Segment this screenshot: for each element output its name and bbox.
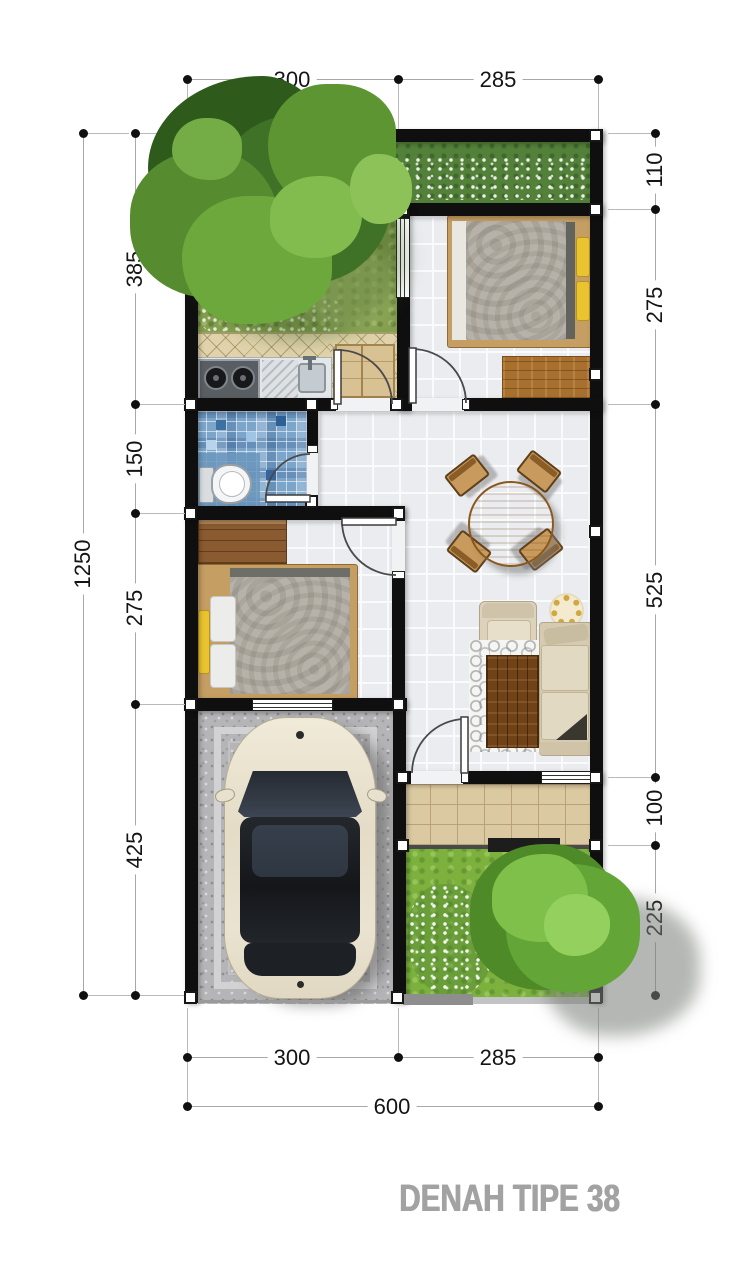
door-arc-service [338, 350, 392, 404]
dim-label-left-425: 425 [121, 826, 149, 875]
door-leaf-bedroom2 [342, 518, 396, 525]
dim-label-right-275: 275 [641, 281, 669, 330]
door-arc-bedroom1 [412, 349, 466, 403]
dim-label-bottom-300: 300 [268, 1044, 317, 1072]
dim-label-top-285: 285 [474, 66, 523, 94]
dim-connector [608, 404, 655, 405]
door-leaf-bathroom [266, 495, 310, 502]
door-leaf-main-entry [461, 717, 468, 773]
dim-dot [131, 991, 140, 1000]
dim-connector [608, 133, 655, 134]
dim-dot [131, 400, 140, 409]
dim-dot [79, 991, 88, 1000]
dim-connector [135, 704, 185, 705]
dim-connector [187, 1008, 188, 1057]
door-arc-main-entry [412, 719, 464, 773]
dim-label-left-275: 275 [121, 584, 149, 633]
dim-dot [131, 700, 140, 709]
dim-dot [394, 1053, 403, 1062]
dim-connector [135, 404, 185, 405]
dim-connector [608, 209, 655, 210]
dim-dot [79, 129, 88, 138]
dim-connector [608, 777, 655, 778]
dim-line-bottom [187, 1057, 598, 1058]
plan-title: DENAH TIPE 38 [386, 1178, 620, 1221]
dim-label-right-100: 100 [641, 784, 669, 833]
dim-label-right-110: 110 [641, 146, 669, 193]
front-garden-bush [448, 836, 712, 1052]
door-arc-bedroom2 [342, 521, 396, 575]
dim-connector [598, 84, 599, 129]
dim-dot [594, 1102, 603, 1111]
door-arc-bathroom [266, 454, 310, 498]
door-leaf-service [334, 350, 341, 404]
back-garden-tree [120, 58, 440, 353]
tree-canopy-highlight [172, 118, 242, 180]
dim-dot [183, 1053, 192, 1062]
dim-dot [651, 773, 660, 782]
dim-connector [598, 1062, 599, 1106]
dim-dot [651, 400, 660, 409]
dim-label-bottom-600: 600 [368, 1093, 417, 1121]
dim-dot [594, 1053, 603, 1062]
dim-dot [594, 75, 603, 84]
dim-connector [135, 513, 185, 514]
dim-dot [131, 509, 140, 518]
dim-label-left-1250: 1250 [69, 534, 97, 595]
dim-connector [187, 1062, 188, 1106]
dim-connector [398, 1008, 399, 1057]
dim-dot [183, 1102, 192, 1111]
door-leaf-bedroom1 [409, 348, 416, 403]
dim-label-left-150: 150 [121, 435, 149, 484]
dim-dot [651, 129, 660, 138]
tree-canopy-highlight [350, 154, 412, 224]
dim-label-right-525: 525 [641, 566, 669, 615]
dim-dot [651, 205, 660, 214]
tree-canopy-highlight [270, 176, 362, 258]
floor-plan-canvas: 300 285 1250 385 150 275 425 110 275 525… [0, 0, 732, 1280]
